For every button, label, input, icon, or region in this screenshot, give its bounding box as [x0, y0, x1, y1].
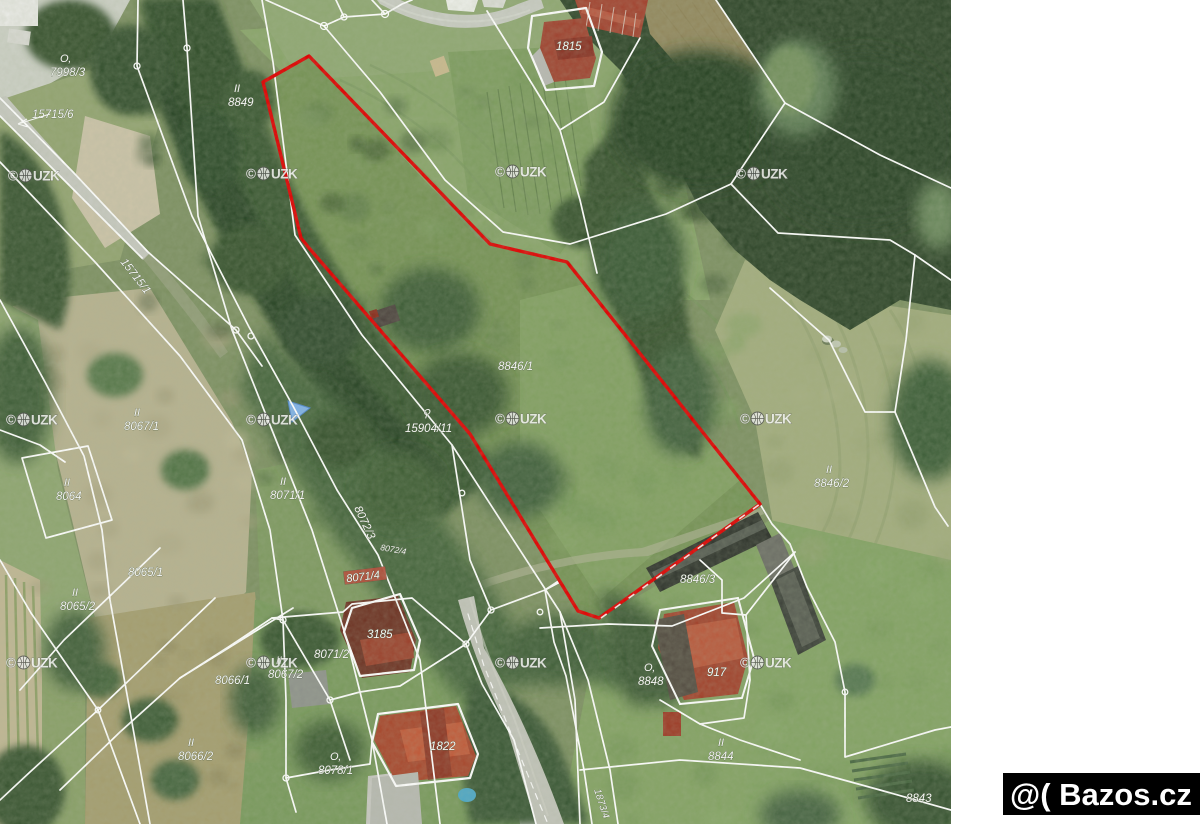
svg-text:@( Bazos.cz: @( Bazos.cz [1010, 777, 1192, 812]
